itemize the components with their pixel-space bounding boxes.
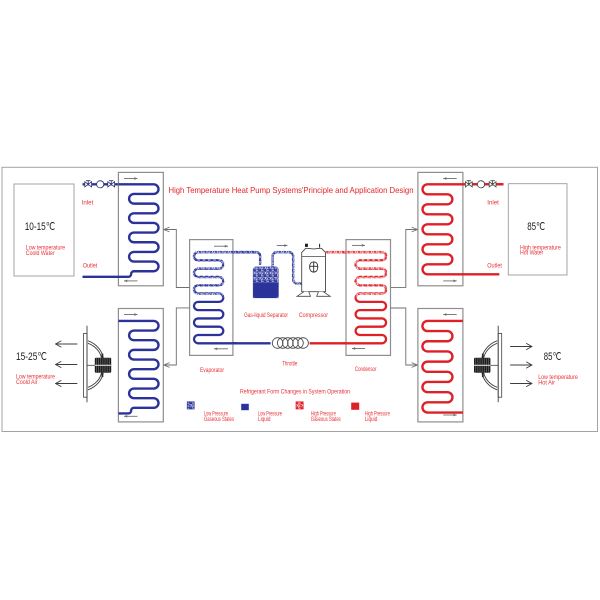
svg-text:85℃: 85℃ — [527, 221, 545, 233]
svg-text:Outlet: Outlet — [83, 263, 98, 270]
svg-text:Hot Air: Hot Air — [538, 379, 555, 386]
svg-text:Coold Air: Coold Air — [16, 379, 38, 386]
svg-text:Outlet: Outlet — [487, 263, 502, 270]
svg-text:Gas-liquid Separator: Gas-liquid Separator — [244, 312, 288, 319]
svg-text:Coold Water: Coold Water — [26, 250, 55, 257]
svg-text:Compressor: Compressor — [299, 312, 328, 319]
svg-text:85℃: 85℃ — [544, 351, 561, 363]
svg-text:Throttle: Throttle — [282, 360, 298, 367]
svg-text:Liquid: Liquid — [258, 416, 271, 423]
svg-text:Refrigerant Form Changes in Sy: Refrigerant Form Changes in System Opera… — [240, 389, 350, 396]
svg-text:10-15℃: 10-15℃ — [25, 221, 55, 233]
svg-text:Hot Water: Hot Water — [520, 250, 543, 257]
svg-text:Condensor: Condensor — [355, 366, 377, 373]
svg-text:Gaseous States: Gaseous States — [204, 416, 234, 423]
svg-text:High Temperature Heat Pump Sys: High Temperature Heat Pump Systems'Princ… — [169, 186, 414, 195]
svg-text:Inlet: Inlet — [487, 200, 499, 207]
svg-text:Gaseous States: Gaseous States — [311, 416, 341, 423]
svg-text:Evaporator: Evaporator — [200, 367, 224, 374]
svg-text:Liquid: Liquid — [365, 416, 378, 423]
svg-text:Inlet: Inlet — [82, 200, 94, 207]
svg-text:15-25℃: 15-25℃ — [16, 351, 47, 363]
